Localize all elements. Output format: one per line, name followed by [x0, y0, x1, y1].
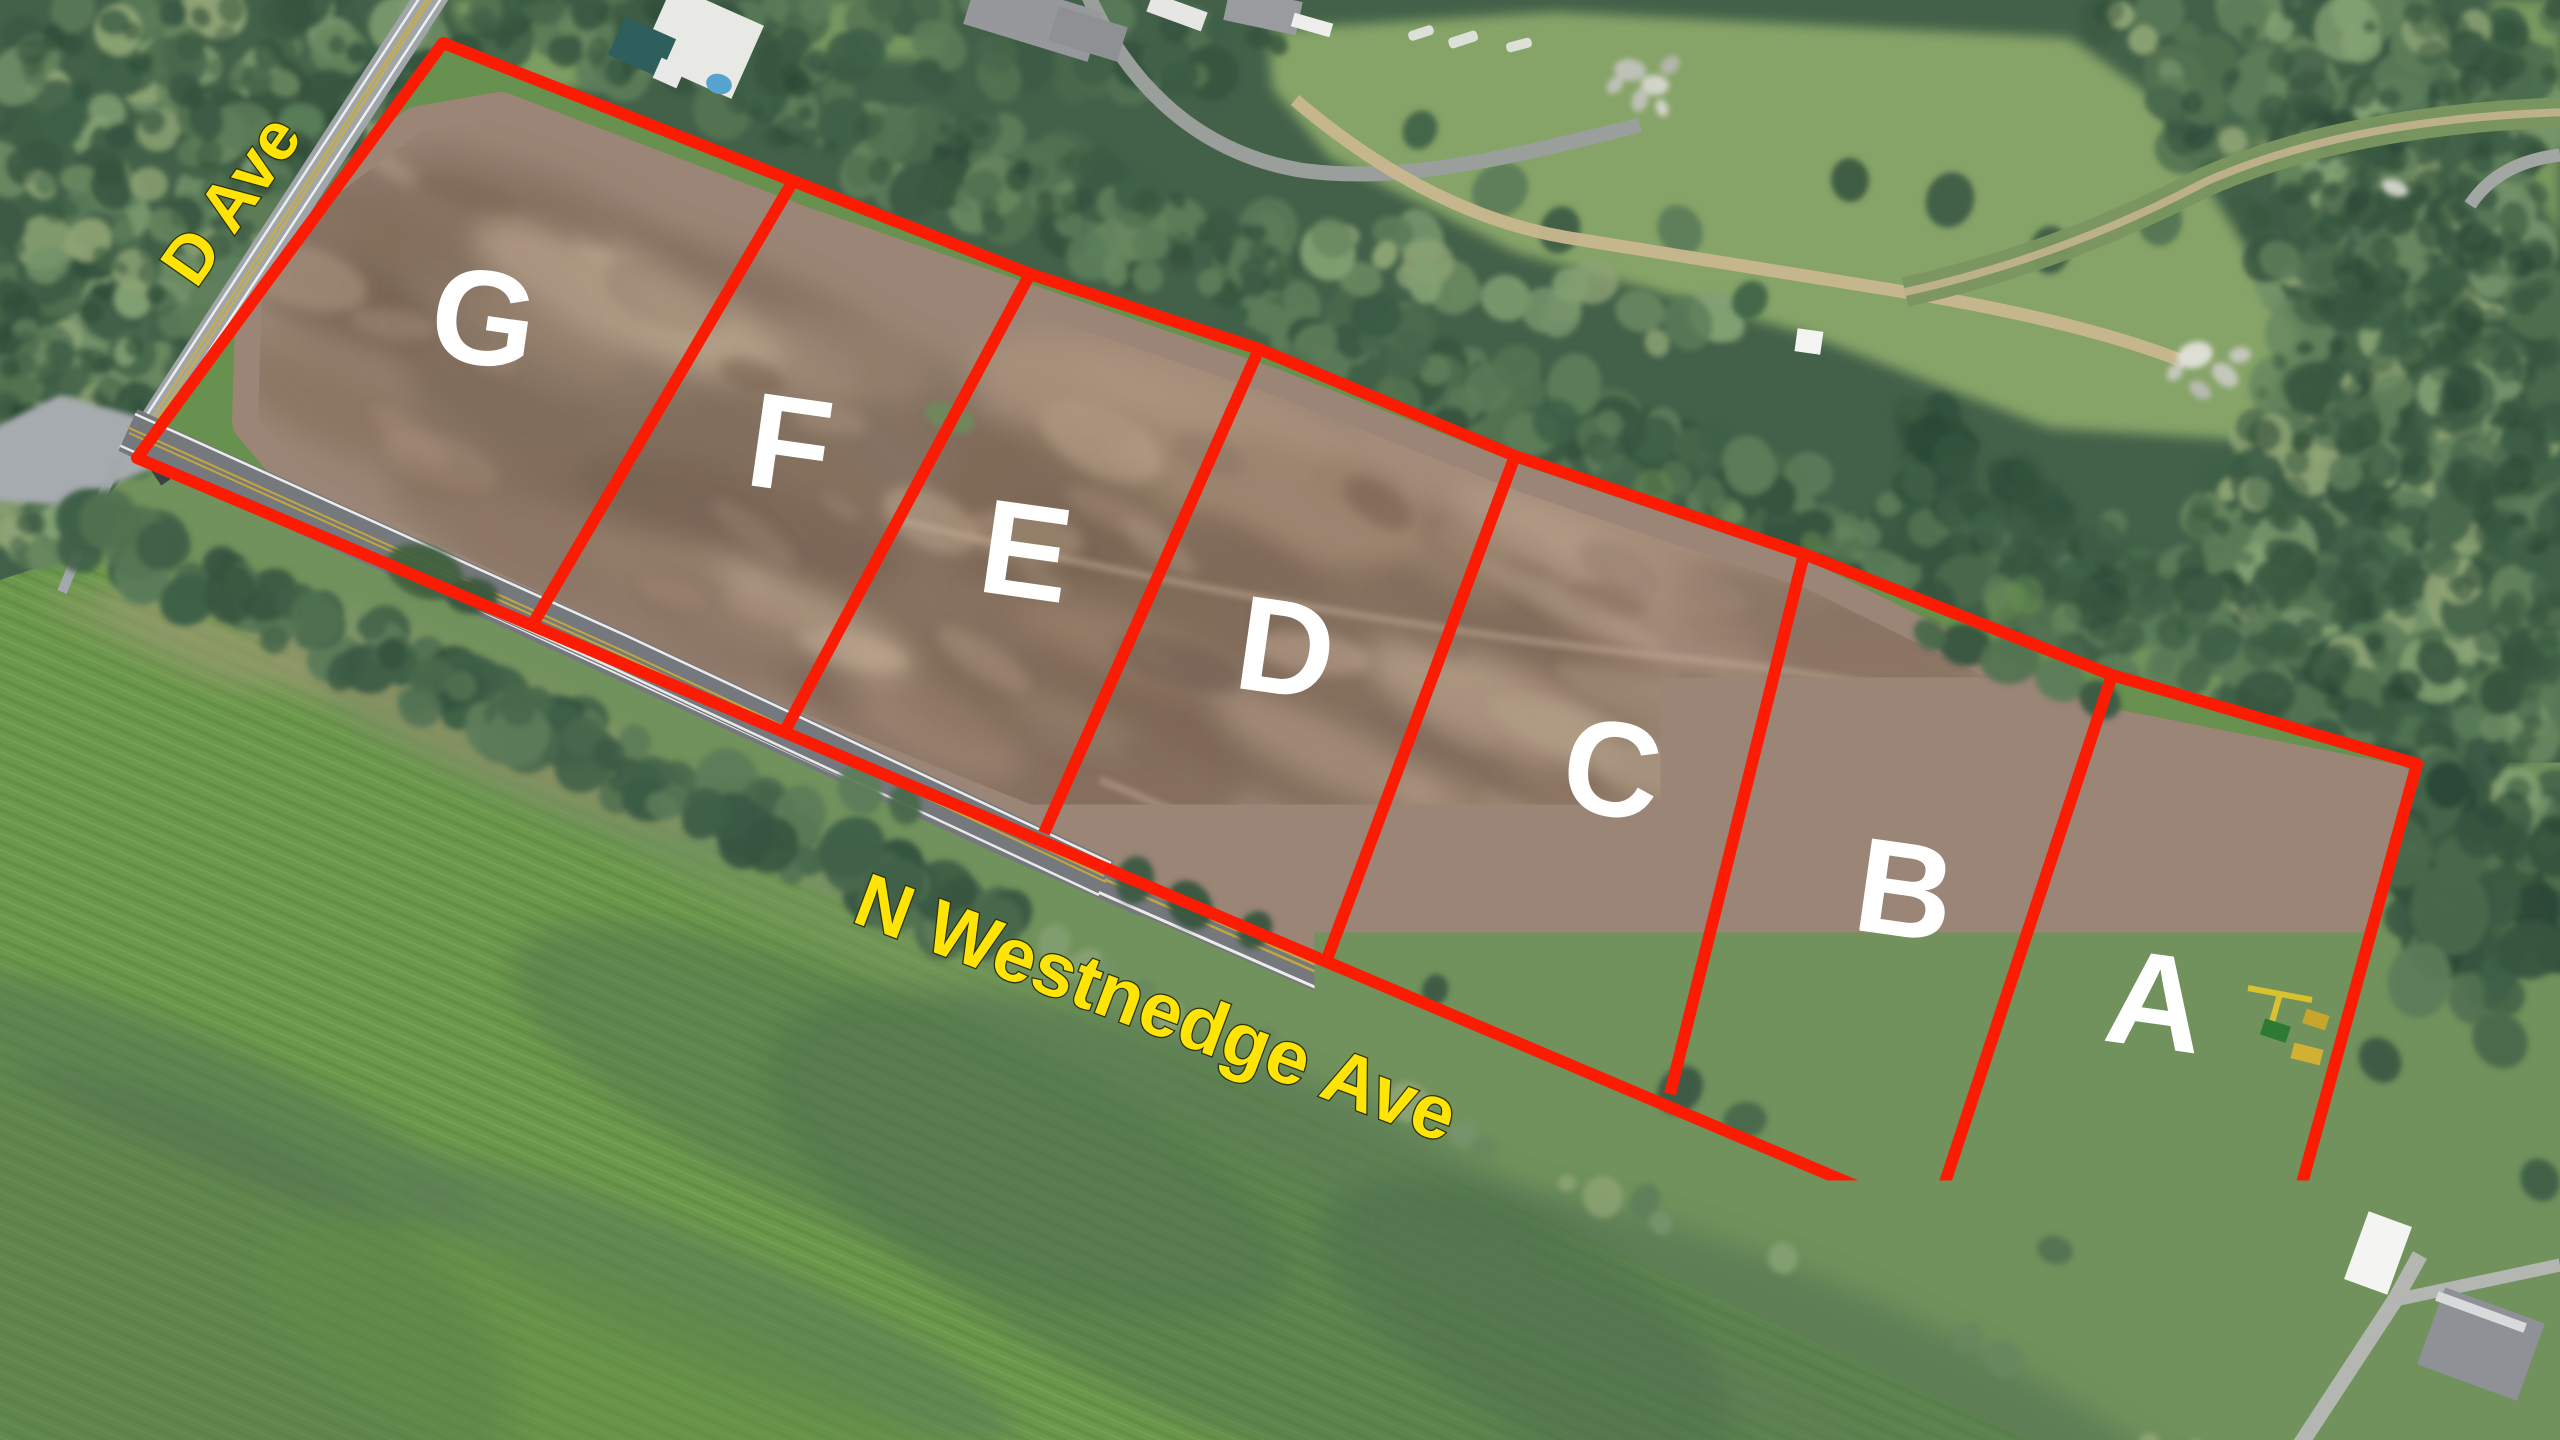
svg-text:G: G — [421, 236, 546, 400]
svg-text:D: D — [1227, 566, 1345, 729]
svg-text:B: B — [1846, 808, 1964, 971]
svg-text:C: C — [1553, 687, 1671, 850]
svg-text:A: A — [2097, 919, 2215, 1082]
